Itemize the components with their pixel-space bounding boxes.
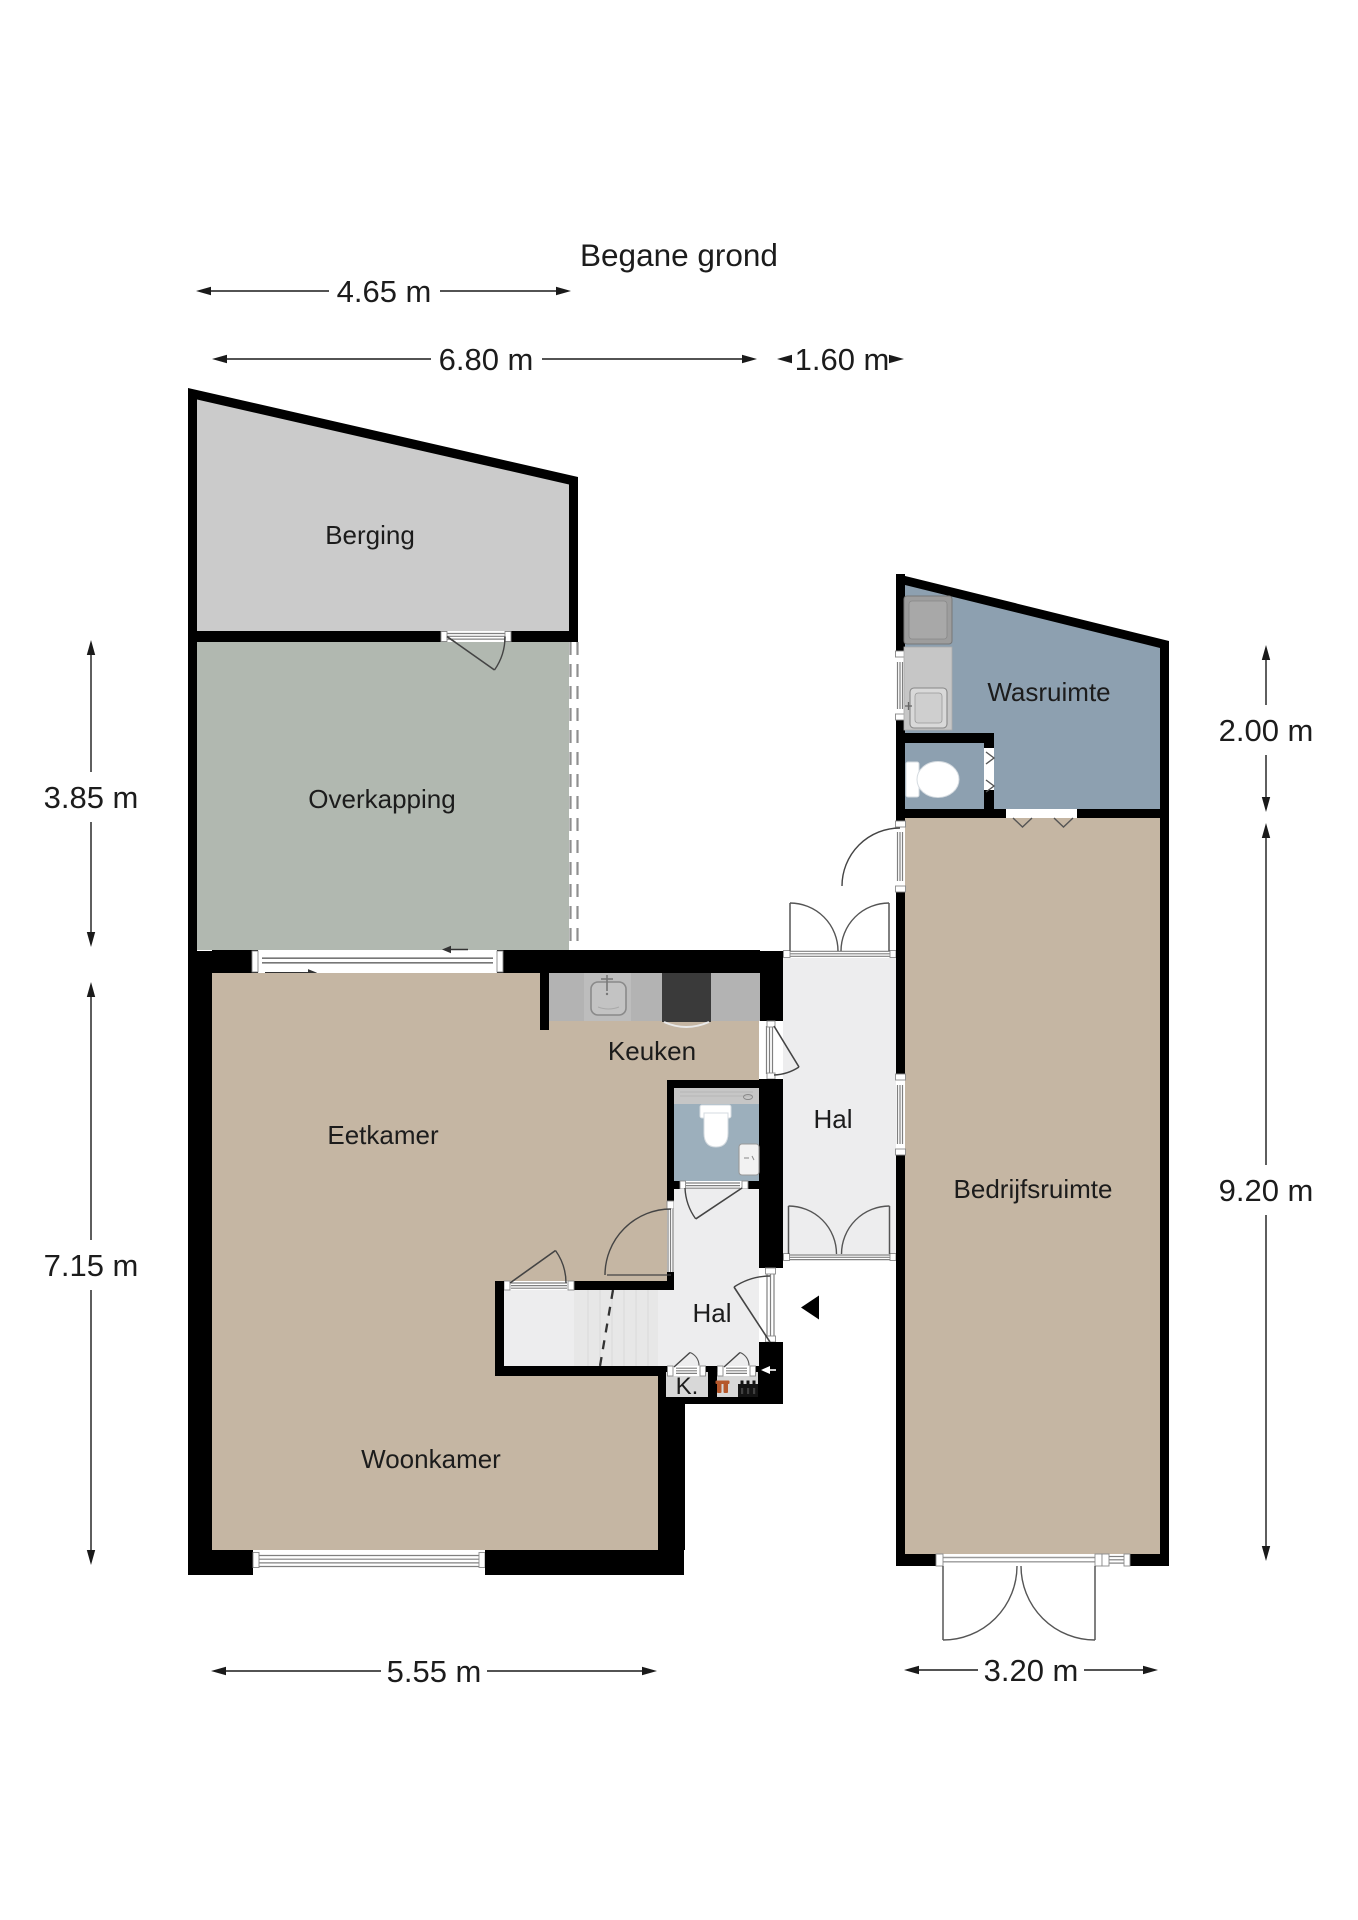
svg-text:Hal: Hal	[692, 1298, 731, 1328]
svg-text:Overkapping: Overkapping	[308, 784, 455, 814]
svg-text:Bedrijfsruimte: Bedrijfsruimte	[954, 1174, 1113, 1204]
svg-text:1.60 m: 1.60 m	[795, 342, 890, 377]
svg-text:K.: K.	[676, 1373, 699, 1400]
svg-text:Berging: Berging	[325, 520, 415, 550]
svg-text:Eetkamer: Eetkamer	[327, 1120, 439, 1150]
svg-text:Begane grond: Begane grond	[580, 237, 778, 273]
svg-text:9.20 m: 9.20 m	[1219, 1173, 1314, 1208]
svg-text:3.20 m: 3.20 m	[984, 1653, 1079, 1688]
svg-text:Hal: Hal	[813, 1104, 852, 1134]
svg-text:3.85 m: 3.85 m	[44, 780, 139, 815]
svg-text:6.80 m: 6.80 m	[439, 342, 534, 377]
svg-text:Woonkamer: Woonkamer	[361, 1444, 501, 1474]
svg-text:2.00 m: 2.00 m	[1219, 713, 1314, 748]
svg-text:7.15 m: 7.15 m	[44, 1248, 139, 1283]
svg-text:Keuken: Keuken	[608, 1036, 696, 1066]
svg-text:5.55 m: 5.55 m	[387, 1654, 482, 1689]
svg-text:4.65 m: 4.65 m	[337, 274, 432, 309]
svg-text:Wasruimte: Wasruimte	[987, 677, 1110, 707]
